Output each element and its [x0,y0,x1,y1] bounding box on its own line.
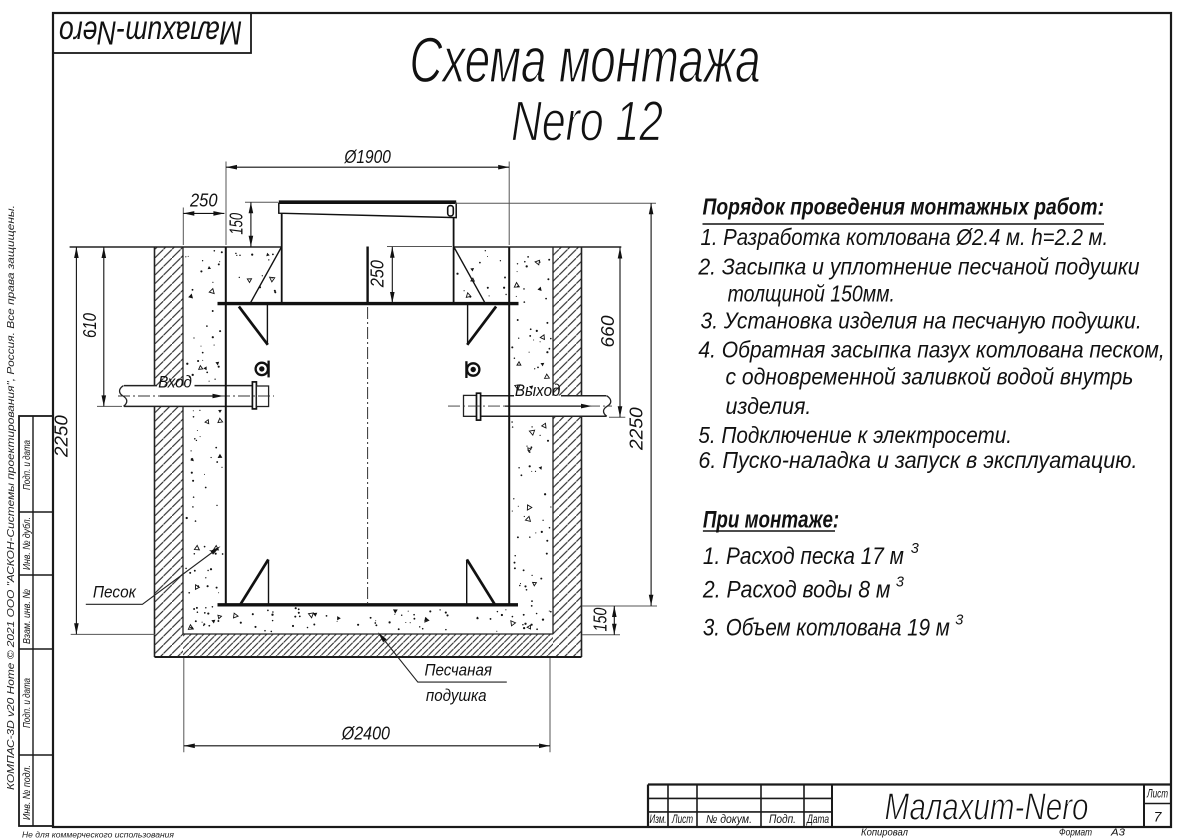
svg-text:Малахит-Nero: Малахит-Nero [59,14,242,51]
svg-text:Изм.: Изм. [650,814,667,826]
svg-text:150: 150 [591,608,611,632]
svg-text:5. Подключение к электросети.: 5. Подключение к электросети. [698,422,1012,448]
svg-text:Инв. № подл.: Инв. № подл. [21,765,33,820]
svg-text:Nero 12: Nero 12 [511,89,663,153]
svg-text:7: 7 [1154,809,1163,825]
svg-text:Не для коммерческого использов: Не для коммерческого использования [22,830,174,839]
svg-text:Порядок проведения монтажных р: Порядок проведения монтажных работ: [703,194,1105,220]
svg-text:Копировал: Копировал [861,827,908,839]
svg-text:2. Засыпка и уплотнение песчан: 2. Засыпка и уплотнение песчаной подушки [697,253,1139,279]
svg-text:Инв. № дубл.: Инв. № дубл. [21,517,33,570]
svg-text:Дата: Дата [806,814,829,826]
svg-text:2. Расход воды 8 м: 2. Расход воды 8 м [702,577,890,604]
svg-text:№ докум.: № докум. [706,814,752,826]
svg-text:Схема монтажа: Схема монтажа [410,24,761,96]
svg-text:КОМПАС-3D v20 Home © 2021 ООО: КОМПАС-3D v20 Home © 2021 ООО "АСКОН-Сис… [5,205,17,790]
svg-text:Подп. и дата: Подп. и дата [21,678,33,728]
svg-text:Лист: Лист [671,814,693,826]
svg-text:1. Разработка котлована Ø2.4 м: 1. Разработка котлована Ø2.4 м. h=2.2 м. [701,224,1109,250]
svg-text:2250: 2250 [627,407,647,451]
svg-text:150: 150 [227,213,247,235]
svg-text:Ø1900: Ø1900 [344,147,391,167]
svg-text:подушка: подушка [426,686,487,705]
svg-text:3: 3 [911,541,919,557]
svg-text:изделия.: изделия. [726,393,812,419]
svg-text:Взам. инв. №: Взам. инв. № [21,589,33,644]
svg-text:250: 250 [189,190,217,210]
svg-text:Подп. и дата: Подп. и дата [21,440,33,490]
svg-text:толщиной 150мм.: толщиной 150мм. [728,281,895,307]
svg-text:А3: А3 [1110,827,1125,839]
svg-text:610: 610 [80,313,100,338]
svg-text:с одновременной заливкой водой: с одновременной заливкой водой внутрь [726,364,1134,390]
svg-text:660: 660 [598,316,618,348]
svg-text:Песок: Песок [93,583,137,602]
svg-text:Песчаная: Песчаная [425,661,493,680]
svg-text:6. Пуско-наладка и запуск в эк: 6. Пуско-наладка и запуск в эксплуатацию… [698,447,1137,473]
svg-text:2250: 2250 [52,415,72,458]
svg-text:3: 3 [955,613,963,629]
svg-text:3. Объем котлована 19 м: 3. Объем котлована 19 м [703,614,950,641]
svg-text:Лист: Лист [1146,789,1168,801]
svg-text:3. Установка изделия на песчан: 3. Установка изделия на песчаную подушки… [701,308,1142,334]
svg-text:Выход: Выход [515,382,561,400]
svg-text:Малахит-Nero: Малахит-Nero [885,787,1089,829]
svg-text:Вход: Вход [158,374,192,392]
svg-text:При монтаже:: При монтаже: [703,506,839,533]
svg-text:Ø2400: Ø2400 [341,723,390,743]
svg-text:Формат: Формат [1059,827,1092,839]
svg-text:1. Расход песка 17 м: 1. Расход песка 17 м [703,543,904,570]
svg-text:3: 3 [896,575,904,591]
svg-text:Подп.: Подп. [769,814,796,826]
svg-text:4. Обратная засыпка пазух котл: 4. Обратная засыпка пазух котлована песк… [698,336,1164,362]
svg-text:250: 250 [368,260,388,288]
